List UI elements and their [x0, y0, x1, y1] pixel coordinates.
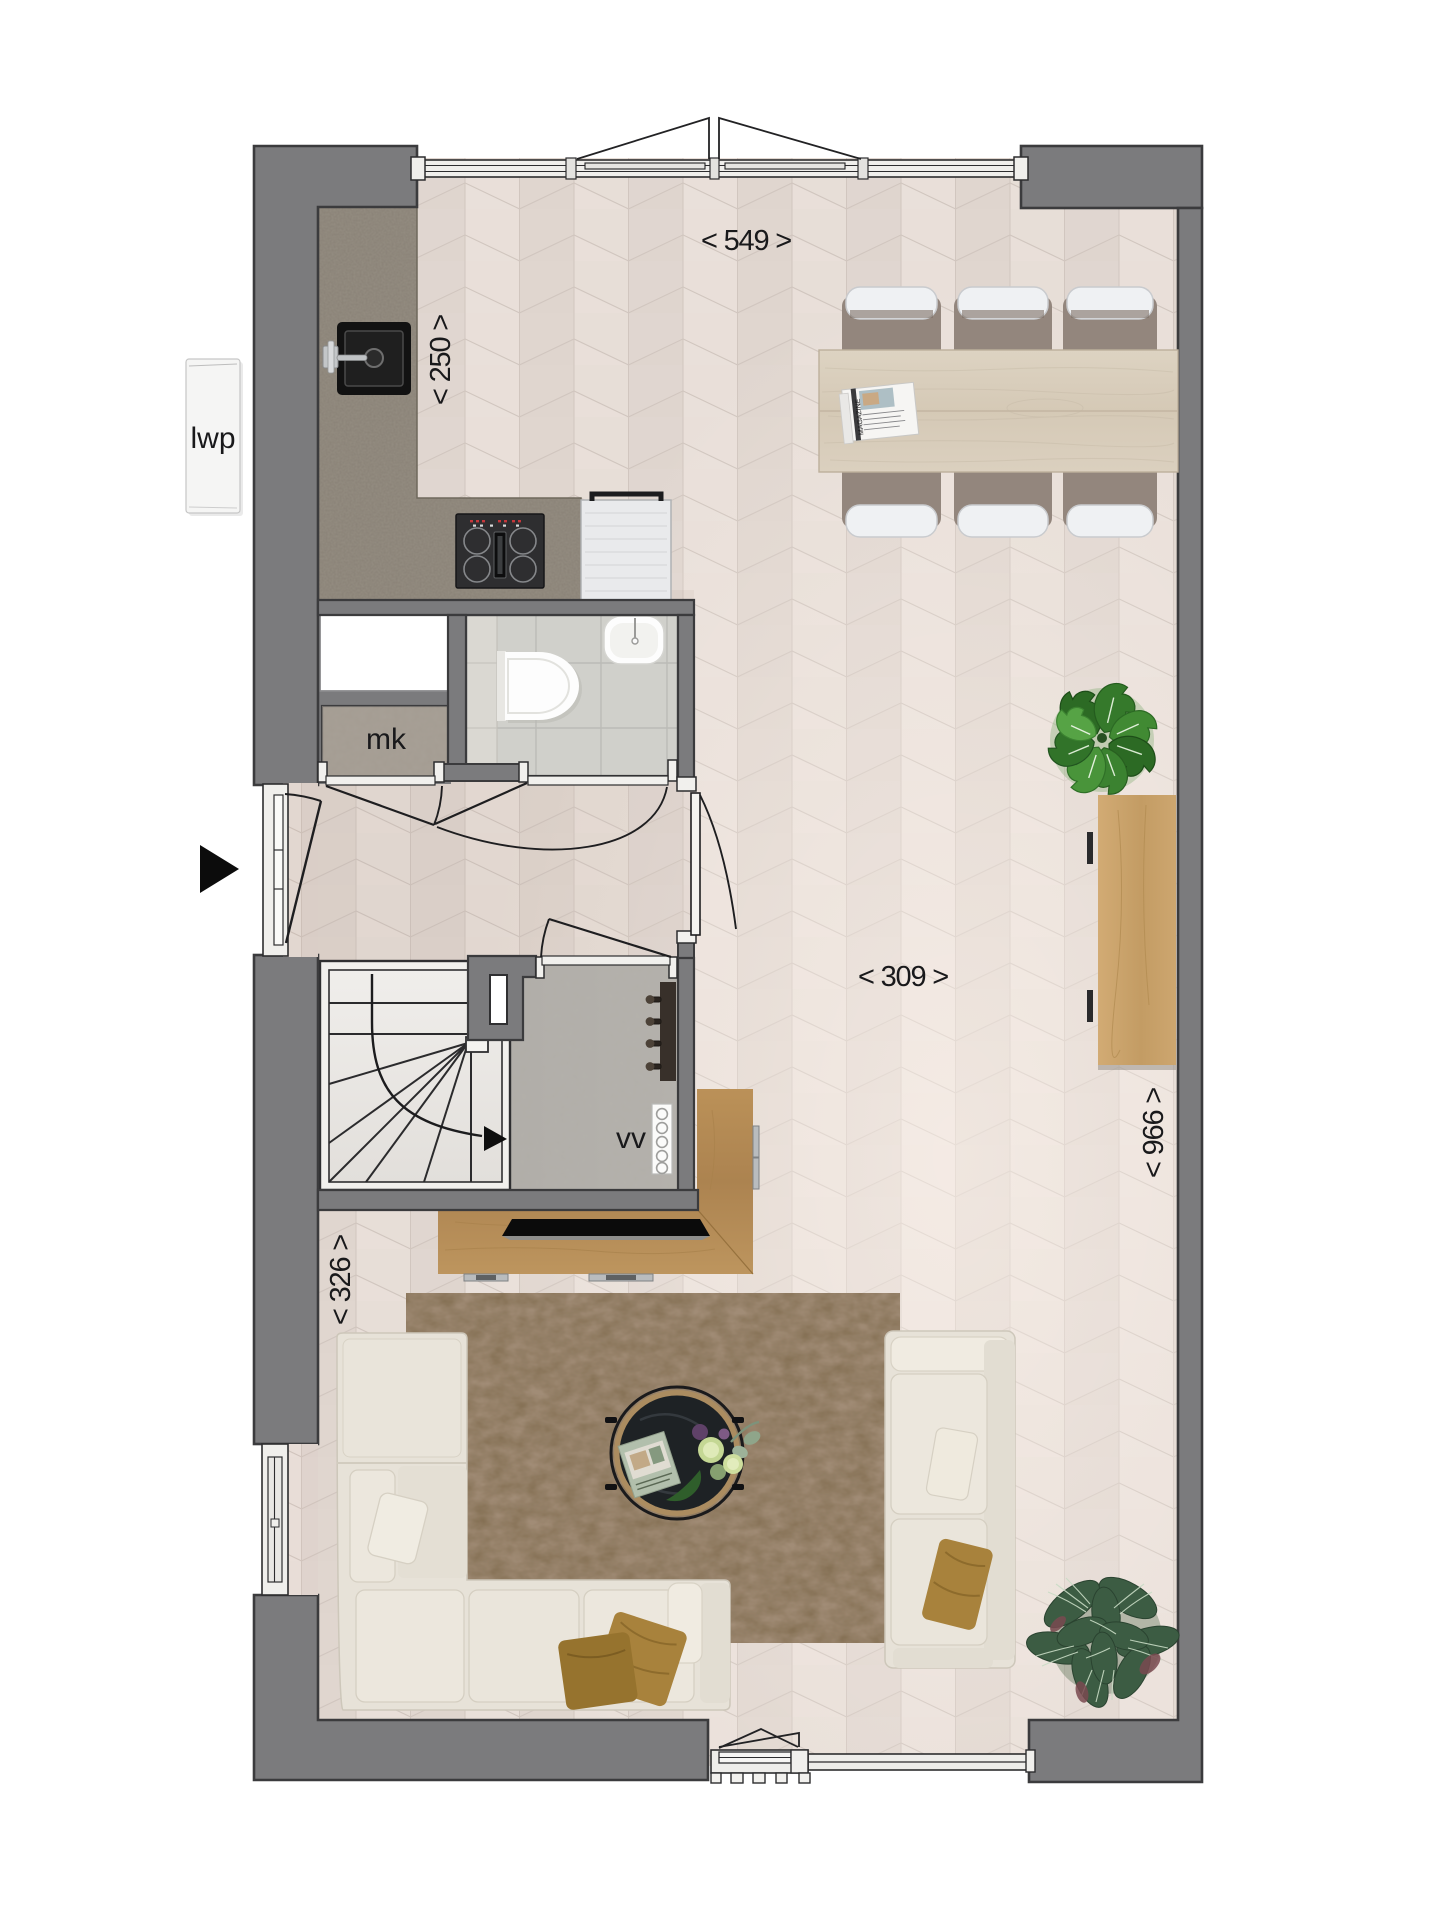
svg-text:< 326 >: < 326 > [325, 1235, 357, 1325]
svg-text:< 309 >: < 309 > [858, 961, 948, 993]
svg-text:vv: vv [616, 1122, 646, 1155]
svg-text:< 250 >: < 250 > [425, 315, 457, 405]
svg-text:< 549 >: < 549 > [701, 225, 791, 257]
svg-text:< 966 >: < 966 > [1138, 1088, 1170, 1178]
svg-text:lwp: lwp [190, 422, 235, 455]
svg-text:mk: mk [366, 723, 407, 756]
